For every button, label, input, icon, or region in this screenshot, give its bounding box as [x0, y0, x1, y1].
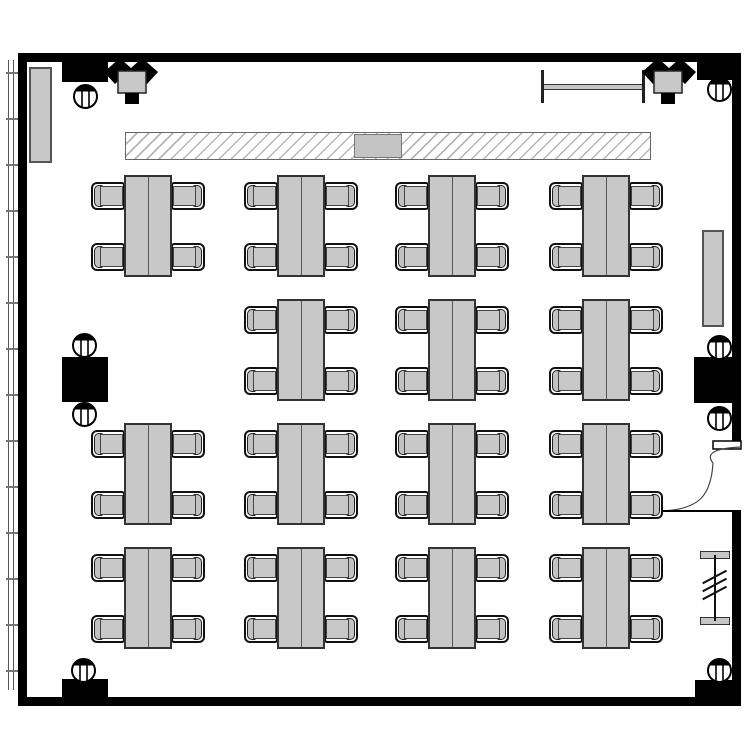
chair	[91, 491, 125, 519]
chair-seat	[404, 434, 427, 454]
chair-seat	[404, 186, 427, 206]
chair-seat	[631, 247, 654, 267]
chair	[91, 430, 125, 458]
desk-divider-line	[452, 177, 453, 275]
double-desk	[582, 547, 630, 649]
wall-pier-top-left	[62, 62, 108, 82]
column-icon	[706, 405, 733, 432]
desk-divider-line	[301, 177, 302, 275]
column-icon	[706, 76, 733, 103]
column-symbol	[72, 83, 99, 110]
chair	[629, 491, 663, 519]
column-symbol	[70, 657, 97, 684]
corner-projector-top-right	[641, 57, 697, 105]
chair-seat	[558, 247, 581, 267]
window-mullion-tick	[6, 118, 18, 120]
chair-seat	[326, 371, 349, 391]
window-mullion-tick	[6, 440, 18, 442]
screen-rail-cap-left	[541, 70, 544, 103]
chair-seat	[404, 495, 427, 515]
chair-seat	[631, 186, 654, 206]
desk-divider-line	[301, 301, 302, 399]
column-icon	[706, 657, 733, 684]
chair	[475, 367, 509, 395]
chair	[629, 306, 663, 334]
projector-icon	[103, 57, 159, 105]
chair	[324, 367, 358, 395]
window-mullion-tick	[6, 164, 18, 166]
window-mullion-tick	[6, 624, 18, 626]
chair	[629, 430, 663, 458]
column-symbol	[706, 657, 733, 684]
window-mullion-tick	[6, 256, 18, 258]
chair-seat	[477, 495, 500, 515]
chair	[549, 491, 583, 519]
chair	[395, 615, 429, 643]
desk-divider-line	[606, 425, 607, 523]
chair-seat	[477, 558, 500, 578]
chair-seat	[253, 371, 276, 391]
chair-seat	[326, 495, 349, 515]
window-mullion-tick	[6, 578, 18, 580]
chair	[629, 615, 663, 643]
chair-seat	[326, 558, 349, 578]
chair-seat	[404, 310, 427, 330]
chair-seat	[326, 186, 349, 206]
chair-seat	[477, 186, 500, 206]
chair-seat	[631, 495, 654, 515]
chair	[324, 491, 358, 519]
chair	[91, 615, 125, 643]
chair-seat	[558, 310, 581, 330]
chair-seat	[100, 558, 123, 578]
window-mullion-tick	[6, 210, 18, 212]
chair	[324, 615, 358, 643]
desk-divider-line	[606, 177, 607, 275]
double-desk	[277, 547, 325, 649]
chair-seat	[404, 371, 427, 391]
double-desk	[428, 299, 476, 401]
window-mullion-tick	[6, 72, 18, 74]
chair	[475, 243, 509, 271]
chair	[171, 615, 205, 643]
corner-projector-top-left	[103, 57, 159, 105]
column-symbol	[71, 401, 98, 428]
chair	[549, 243, 583, 271]
projector-icon	[641, 57, 697, 105]
chair	[171, 243, 205, 271]
double-desk	[582, 175, 630, 277]
window-mullion-tick	[6, 302, 18, 304]
chair	[244, 615, 278, 643]
chair-seat	[173, 558, 196, 578]
desk-divider-line	[301, 549, 302, 647]
whiteboard-panel	[354, 134, 402, 158]
desk-divider-line	[148, 549, 149, 647]
window-mullion-tick	[6, 670, 18, 672]
chair-seat	[631, 558, 654, 578]
chair	[171, 554, 205, 582]
chair	[395, 367, 429, 395]
chair-seat	[404, 247, 427, 267]
screen-rail-bar	[542, 84, 644, 90]
double-desk	[277, 423, 325, 525]
double-desk	[124, 547, 172, 649]
radiator-left	[29, 67, 52, 163]
wall-bottom	[18, 697, 741, 706]
chair	[244, 367, 278, 395]
chair-seat	[173, 495, 196, 515]
wall-right-below-door	[732, 511, 741, 706]
desk-divider-line	[148, 177, 149, 275]
chair-seat	[326, 310, 349, 330]
column-symbol	[706, 76, 733, 103]
double-desk	[428, 175, 476, 277]
double-desk	[428, 547, 476, 649]
chair	[629, 367, 663, 395]
chair	[91, 554, 125, 582]
column-block-left	[62, 357, 108, 402]
desk-divider-line	[606, 549, 607, 647]
window-mullion-tick	[6, 532, 18, 534]
chair-seat	[477, 434, 500, 454]
desk-divider-line	[452, 425, 453, 523]
window-mullion-tick	[6, 486, 18, 488]
chair	[475, 554, 509, 582]
desk-divider-line	[606, 301, 607, 399]
desk-divider-line	[452, 301, 453, 399]
chair	[629, 182, 663, 210]
window-mullion-tick	[6, 348, 18, 350]
chair-seat	[631, 619, 654, 639]
chair	[475, 182, 509, 210]
column-icon	[71, 332, 98, 359]
chair	[549, 182, 583, 210]
chair	[244, 306, 278, 334]
chair-seat	[558, 495, 581, 515]
window-mullion-tick	[6, 394, 18, 396]
chair	[244, 430, 278, 458]
chair	[91, 243, 125, 271]
chair-seat	[477, 310, 500, 330]
chair-seat	[100, 619, 123, 639]
chair	[395, 430, 429, 458]
chair	[549, 367, 583, 395]
chair	[475, 306, 509, 334]
chair-seat	[631, 310, 654, 330]
chair-seat	[173, 186, 196, 206]
chair-seat	[326, 434, 349, 454]
chair-seat	[253, 558, 276, 578]
chair-seat	[558, 619, 581, 639]
double-desk	[277, 175, 325, 277]
chair	[244, 491, 278, 519]
chair	[549, 554, 583, 582]
chair-seat	[558, 371, 581, 391]
chair	[244, 554, 278, 582]
chair	[395, 243, 429, 271]
chair-seat	[631, 371, 654, 391]
double-desk	[277, 299, 325, 401]
chair-seat	[477, 619, 500, 639]
double-desk	[582, 423, 630, 525]
chair	[475, 491, 509, 519]
window-band-left	[8, 60, 14, 690]
chair	[324, 430, 358, 458]
column-icon	[71, 401, 98, 428]
chair-seat	[558, 558, 581, 578]
chair-seat	[326, 619, 349, 639]
chair-seat	[253, 310, 276, 330]
column-symbol	[706, 405, 733, 432]
chair	[324, 243, 358, 271]
column-symbol	[71, 332, 98, 359]
floor-plan	[0, 0, 750, 750]
chair-seat	[558, 434, 581, 454]
chair-seat	[173, 619, 196, 639]
door-right	[650, 432, 745, 518]
chair-seat	[477, 247, 500, 267]
chair	[395, 182, 429, 210]
chair	[629, 243, 663, 271]
chair-seat	[100, 495, 123, 515]
chair-seat	[404, 558, 427, 578]
chair	[171, 430, 205, 458]
chair	[549, 306, 583, 334]
chair-seat	[253, 247, 276, 267]
column-symbol	[706, 334, 733, 361]
column-block-right	[694, 357, 741, 403]
chair-seat	[173, 247, 196, 267]
coat-rack-rail	[714, 555, 716, 621]
chair	[244, 182, 278, 210]
wall-left	[18, 53, 27, 706]
chair-seat	[253, 495, 276, 515]
chair-seat	[100, 247, 123, 267]
desk-divider-line	[452, 549, 453, 647]
double-desk	[428, 423, 476, 525]
chair	[395, 306, 429, 334]
chair-seat	[253, 619, 276, 639]
chair-seat	[173, 434, 196, 454]
chair	[549, 430, 583, 458]
chair	[395, 491, 429, 519]
chair	[171, 491, 205, 519]
chair	[549, 615, 583, 643]
chair-seat	[558, 186, 581, 206]
desk-divider-line	[301, 425, 302, 523]
chair-seat	[477, 371, 500, 391]
chair	[324, 554, 358, 582]
chair	[475, 615, 509, 643]
chair-seat	[100, 186, 123, 206]
desk-divider-line	[148, 425, 149, 523]
chair	[171, 182, 205, 210]
chair-seat	[631, 434, 654, 454]
chair	[475, 430, 509, 458]
chair	[244, 243, 278, 271]
chair	[629, 554, 663, 582]
column-icon	[706, 334, 733, 361]
chair	[91, 182, 125, 210]
chair-seat	[253, 186, 276, 206]
double-desk	[124, 423, 172, 525]
radiator-right	[702, 230, 724, 327]
chair-seat	[404, 619, 427, 639]
double-desk	[124, 175, 172, 277]
chair	[324, 306, 358, 334]
chair	[324, 182, 358, 210]
door-icon	[650, 432, 745, 518]
column-icon	[70, 657, 97, 684]
chair-seat	[326, 247, 349, 267]
double-desk	[582, 299, 630, 401]
chair-seat	[100, 434, 123, 454]
column-icon	[72, 83, 99, 110]
chair-seat	[253, 434, 276, 454]
chair	[395, 554, 429, 582]
